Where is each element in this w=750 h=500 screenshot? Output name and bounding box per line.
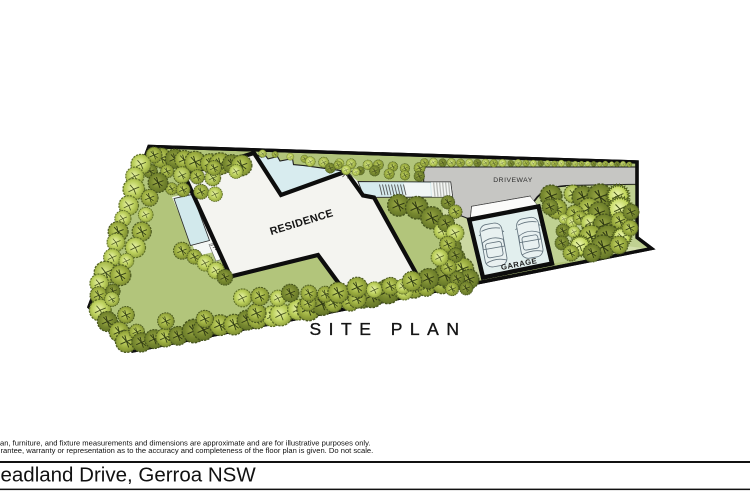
svg-text:rantee, warranty or representa: rantee, warranty or representation as to… <box>1 446 374 455</box>
svg-text:SITE PLAN: SITE PLAN <box>310 319 467 339</box>
svg-text:DRIVEWAY: DRIVEWAY <box>493 177 533 184</box>
svg-text:eadland Drive, Gerroa NSW: eadland Drive, Gerroa NSW <box>1 463 257 486</box>
